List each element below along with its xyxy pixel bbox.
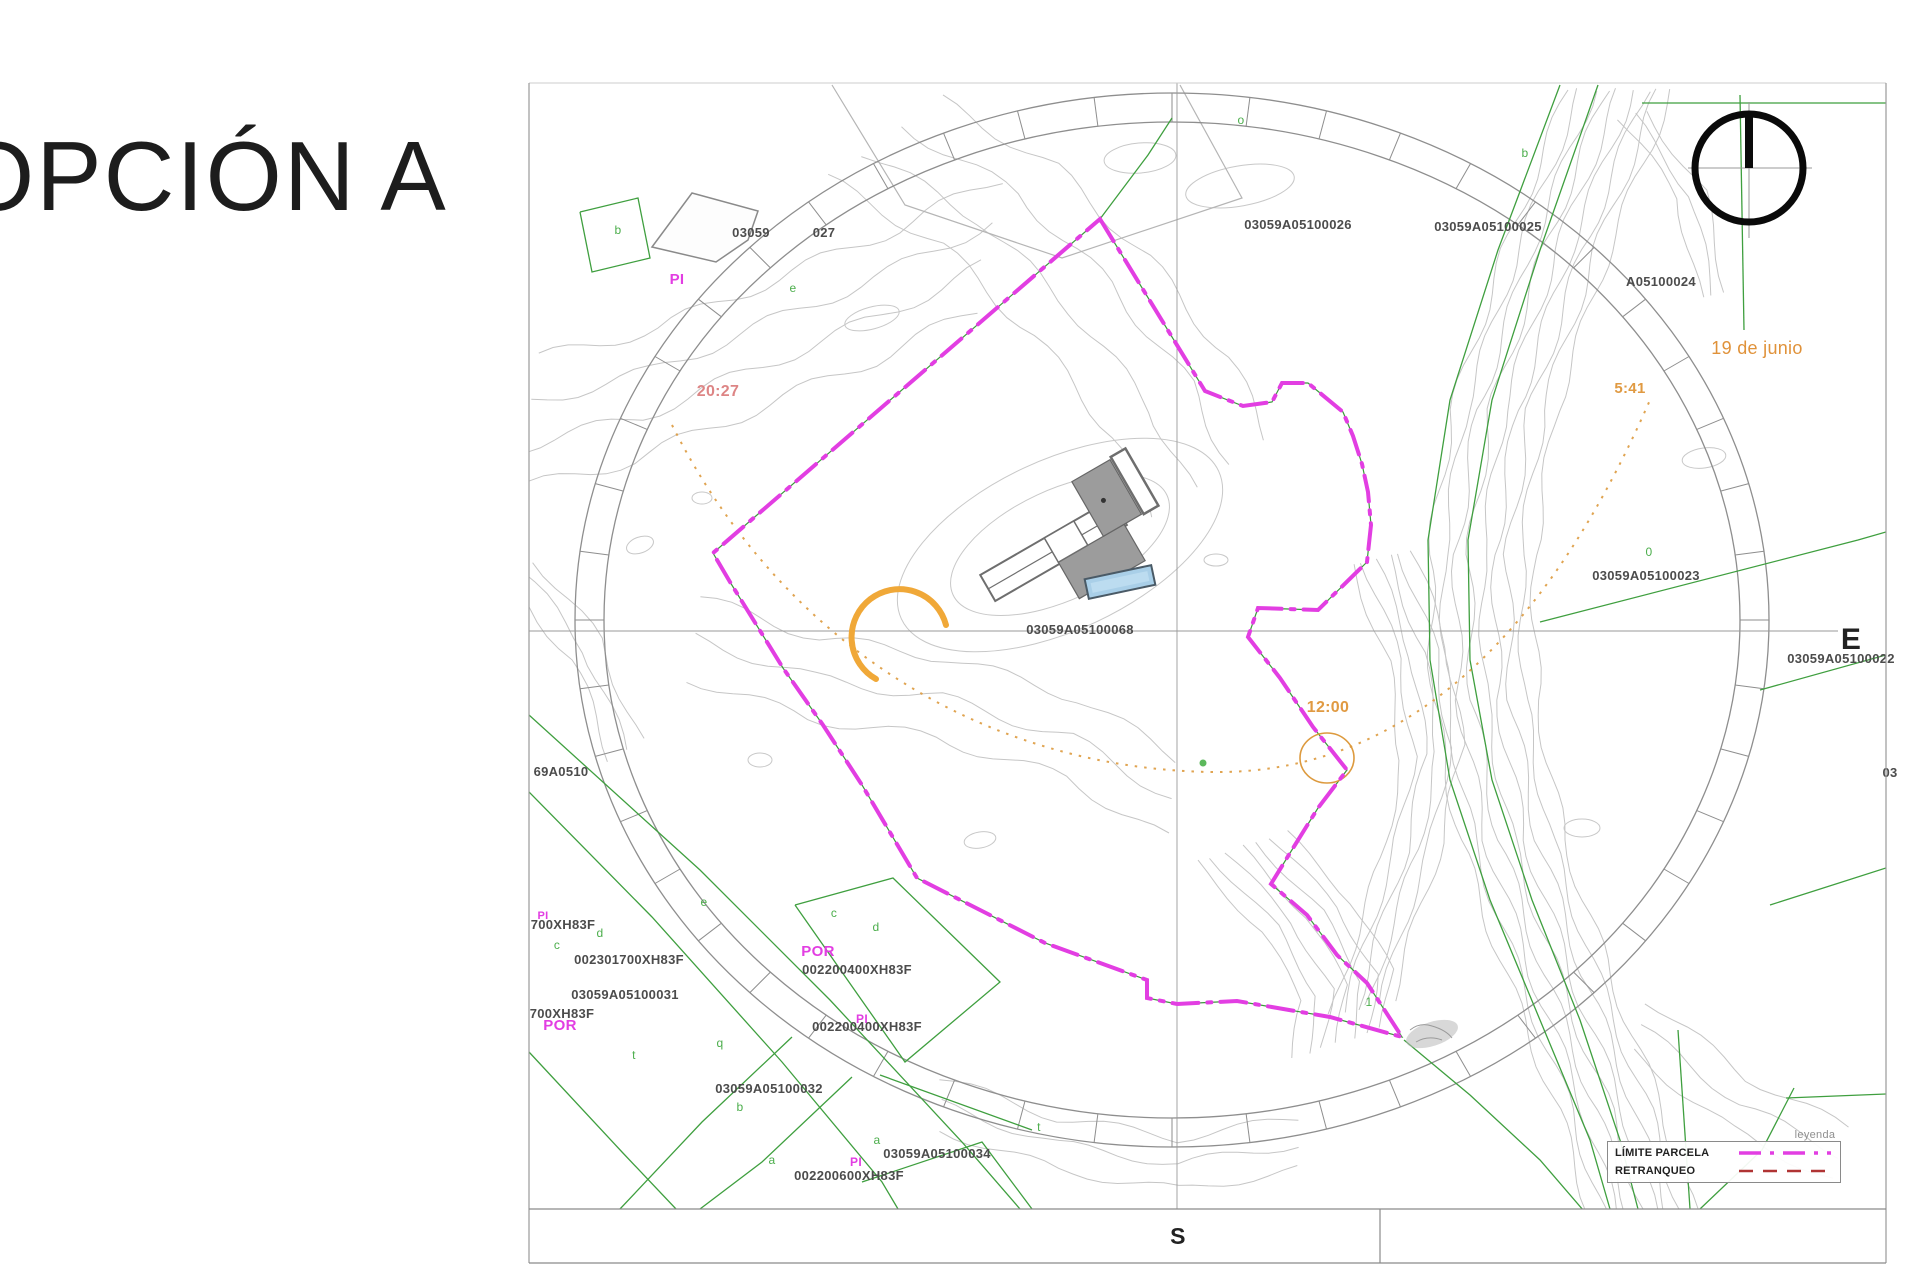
limite-parcela-line-sample <box>1737 1149 1833 1157</box>
legend: LÍMITE PARCELA RETRANQUEO <box>1607 1141 1841 1183</box>
use-code: PI <box>670 271 685 288</box>
parcel-ref: 03059A05100034 <box>883 1146 991 1161</box>
legend-item-limite-parcela: LÍMITE PARCELA <box>1615 1145 1833 1161</box>
site-plan-svg: 0305902703059A0510002603059A05100025A051… <box>0 0 1920 1280</box>
subparcel-letter: o <box>1238 113 1245 127</box>
subparcel-letter: e <box>701 895 708 909</box>
use-code: PI <box>538 910 549 922</box>
use-code: PI <box>850 1155 862 1169</box>
subparcel-letter: b <box>615 223 622 237</box>
subparcel-letter: 1 <box>1366 995 1373 1009</box>
legend-item-label: RETRANQUEO <box>1615 1165 1695 1177</box>
subparcel-letter: c <box>831 906 837 920</box>
neighbor-parcel-lines <box>832 85 1242 258</box>
solstice-date: 19 de junio <box>1711 338 1802 358</box>
noon-sun-circle <box>1300 733 1354 783</box>
subparcel-letter: t <box>1037 1120 1041 1134</box>
east-label: E <box>1841 623 1861 656</box>
parcel-ref: 027 <box>813 225 836 240</box>
parcel-ref: 002200400XH83F <box>812 1019 922 1034</box>
sunset-time: 20:27 <box>697 383 739 400</box>
retranqueo-line-sample <box>1737 1167 1833 1175</box>
legend-caption: leyenda <box>1795 1129 1836 1141</box>
sun-path-arc <box>672 400 1650 772</box>
north-indicator <box>1688 102 1812 238</box>
subparcel-letter: d <box>873 920 880 934</box>
parcel-ref: 03 <box>1882 765 1897 780</box>
subparcel-letter: d <box>597 926 604 940</box>
parcel-ref: A05100024 <box>1626 274 1696 289</box>
sunrise-time: 5:41 <box>1614 380 1645 397</box>
parcel-ref: 002200400XH83F <box>802 962 912 977</box>
subparcel-letter: c <box>554 938 560 952</box>
subparcel-letter: a <box>769 1153 776 1167</box>
subparcel-letter: q <box>717 1036 724 1050</box>
subparcel-letter: e <box>790 281 797 295</box>
parcel-ref: 03059 <box>732 225 770 240</box>
south-label: S <box>1170 1223 1186 1249</box>
solar-orientation-arc <box>852 589 946 679</box>
subparcel-letter: 0 <box>1646 545 1653 559</box>
parcel-ref: 69A0510 <box>534 764 589 779</box>
parcel-ref: 03059A05100026 <box>1244 217 1352 232</box>
parcel-ref: 03059A05100023 <box>1592 568 1700 583</box>
subparcel-letter: t <box>632 1048 636 1062</box>
cadastral-lines <box>529 85 1886 1232</box>
map-labels: 0305902703059A0510002603059A05100025A051… <box>530 113 1898 1249</box>
subparcel-letter: a <box>874 1133 881 1147</box>
sun-path-marker-dot <box>1200 760 1207 767</box>
legend-item-label: LÍMITE PARCELA <box>1615 1147 1709 1159</box>
parcel-ref: 002301700XH83F <box>574 952 684 967</box>
parcel-ref: 03059A05100068 <box>1026 622 1134 637</box>
subparcel-letter: b <box>737 1100 744 1114</box>
building-footprint <box>962 448 1179 635</box>
subparcel-letter: b <box>1522 146 1529 160</box>
scree-hatch <box>1403 1014 1462 1054</box>
parcel-ref: 002200600XH83F <box>794 1168 904 1183</box>
legend-item-retranqueo: RETRANQUEO <box>1615 1163 1833 1179</box>
parcel-ref: 03059A05100025 <box>1434 219 1542 234</box>
parcel-ref: 03059A05100031 <box>571 987 679 1002</box>
use-code: POR <box>543 1017 576 1034</box>
noon-time: 12:00 <box>1307 699 1349 716</box>
site-plan-page: OPCIÓN A <box>0 0 1920 1280</box>
parcel-ref: 03059A05100032 <box>715 1081 823 1096</box>
use-code: POR <box>801 943 834 960</box>
